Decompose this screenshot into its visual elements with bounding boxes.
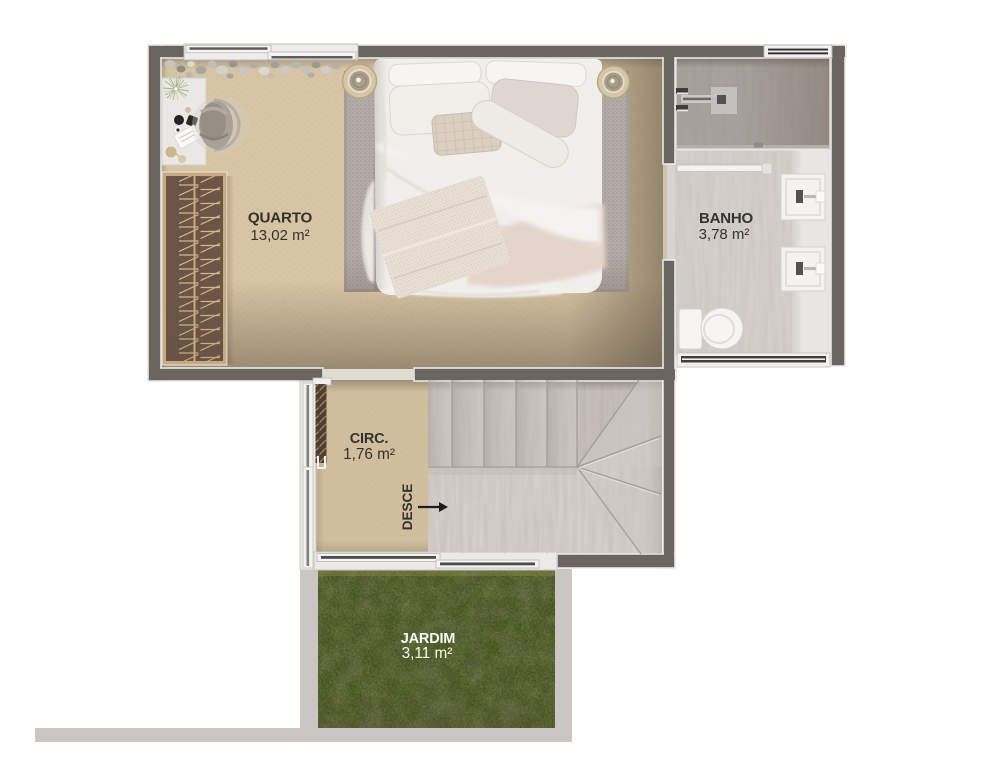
svg-text:BANHO: BANHO [699, 210, 754, 227]
svg-text:1,76 m²: 1,76 m² [343, 446, 395, 463]
svg-text:DESCE: DESCE [400, 484, 415, 531]
svg-text:3,11 m²: 3,11 m² [402, 645, 453, 662]
svg-text:13,02 m²: 13,02 m² [250, 227, 309, 244]
svg-text:CIRC.: CIRC. [350, 431, 389, 447]
svg-text:3,78 m²: 3,78 m² [699, 226, 750, 243]
svg-text:QUARTO: QUARTO [248, 210, 313, 227]
